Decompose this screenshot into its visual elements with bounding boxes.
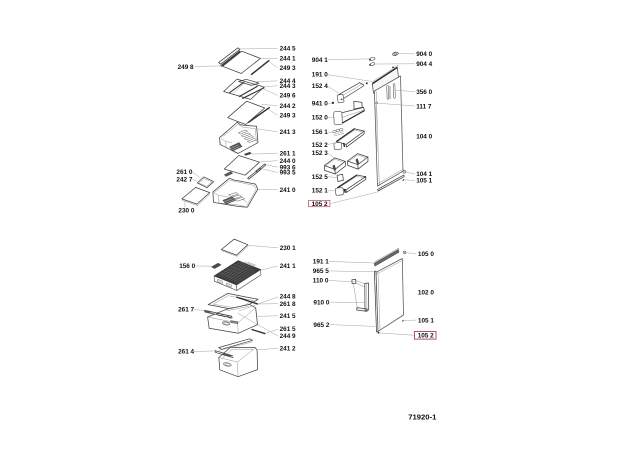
svg-text:261 0: 261 0 bbox=[176, 169, 192, 176]
svg-text:261 5: 261 5 bbox=[280, 326, 296, 333]
svg-text:904 1: 904 1 bbox=[312, 57, 328, 64]
svg-text:261 1: 261 1 bbox=[280, 151, 296, 158]
svg-text:241 2: 241 2 bbox=[280, 345, 296, 352]
svg-text:105 1: 105 1 bbox=[416, 178, 432, 185]
svg-text:191 0: 191 0 bbox=[312, 72, 328, 79]
svg-text:904 0: 904 0 bbox=[416, 51, 432, 58]
svg-text:152 1: 152 1 bbox=[312, 187, 328, 194]
svg-text:105 1: 105 1 bbox=[418, 317, 434, 324]
svg-text:242 7: 242 7 bbox=[176, 177, 192, 184]
svg-text:261 7: 261 7 bbox=[178, 307, 194, 314]
svg-text:241 3: 241 3 bbox=[280, 129, 296, 136]
svg-text:244 8: 244 8 bbox=[280, 294, 296, 301]
svg-text:152 2: 152 2 bbox=[312, 142, 328, 149]
svg-text:993 5: 993 5 bbox=[280, 170, 296, 177]
svg-text:261 8: 261 8 bbox=[280, 301, 296, 308]
svg-text:904 4: 904 4 bbox=[416, 61, 432, 68]
svg-text:249 8: 249 8 bbox=[178, 64, 194, 71]
svg-text:152 5: 152 5 bbox=[312, 174, 328, 181]
svg-text:261 4: 261 4 bbox=[178, 349, 194, 356]
svg-text:244 1: 244 1 bbox=[280, 56, 296, 63]
svg-text:244 3: 244 3 bbox=[280, 83, 296, 90]
svg-text:356 0: 356 0 bbox=[416, 89, 432, 96]
svg-text:241 0: 241 0 bbox=[280, 187, 296, 194]
svg-text:152 3: 152 3 bbox=[312, 150, 328, 157]
svg-text:241 5: 241 5 bbox=[280, 313, 296, 320]
svg-text:110 0: 110 0 bbox=[313, 278, 329, 285]
svg-text:111 7: 111 7 bbox=[416, 103, 432, 110]
svg-text:965 2: 965 2 bbox=[313, 322, 329, 329]
svg-text:230 0: 230 0 bbox=[178, 208, 194, 215]
svg-text:244 2: 244 2 bbox=[280, 103, 296, 110]
svg-text:941 0: 941 0 bbox=[312, 101, 328, 108]
svg-text:156 1: 156 1 bbox=[312, 129, 328, 136]
svg-text:105 0: 105 0 bbox=[418, 251, 434, 258]
svg-text:105 2: 105 2 bbox=[312, 201, 328, 208]
svg-text:71920-1: 71920-1 bbox=[408, 413, 437, 422]
svg-text:244 9: 244 9 bbox=[280, 333, 296, 340]
svg-text:191 1: 191 1 bbox=[313, 259, 329, 266]
svg-text:156 0: 156 0 bbox=[179, 263, 195, 270]
svg-text:105 2: 105 2 bbox=[418, 333, 434, 340]
svg-text:152 4: 152 4 bbox=[312, 83, 328, 90]
svg-text:249 3: 249 3 bbox=[280, 113, 296, 120]
svg-text:104 0: 104 0 bbox=[416, 134, 432, 141]
svg-text:241 1: 241 1 bbox=[280, 263, 296, 270]
svg-text:965 5: 965 5 bbox=[313, 268, 329, 275]
svg-text:910 0: 910 0 bbox=[313, 299, 329, 306]
svg-text:102 0: 102 0 bbox=[418, 289, 434, 296]
svg-text:152 0: 152 0 bbox=[312, 114, 328, 121]
svg-text:249 6: 249 6 bbox=[280, 93, 296, 100]
svg-text:249 3: 249 3 bbox=[280, 65, 296, 72]
svg-text:230 1: 230 1 bbox=[280, 245, 296, 252]
svg-text:244 5: 244 5 bbox=[280, 46, 296, 53]
